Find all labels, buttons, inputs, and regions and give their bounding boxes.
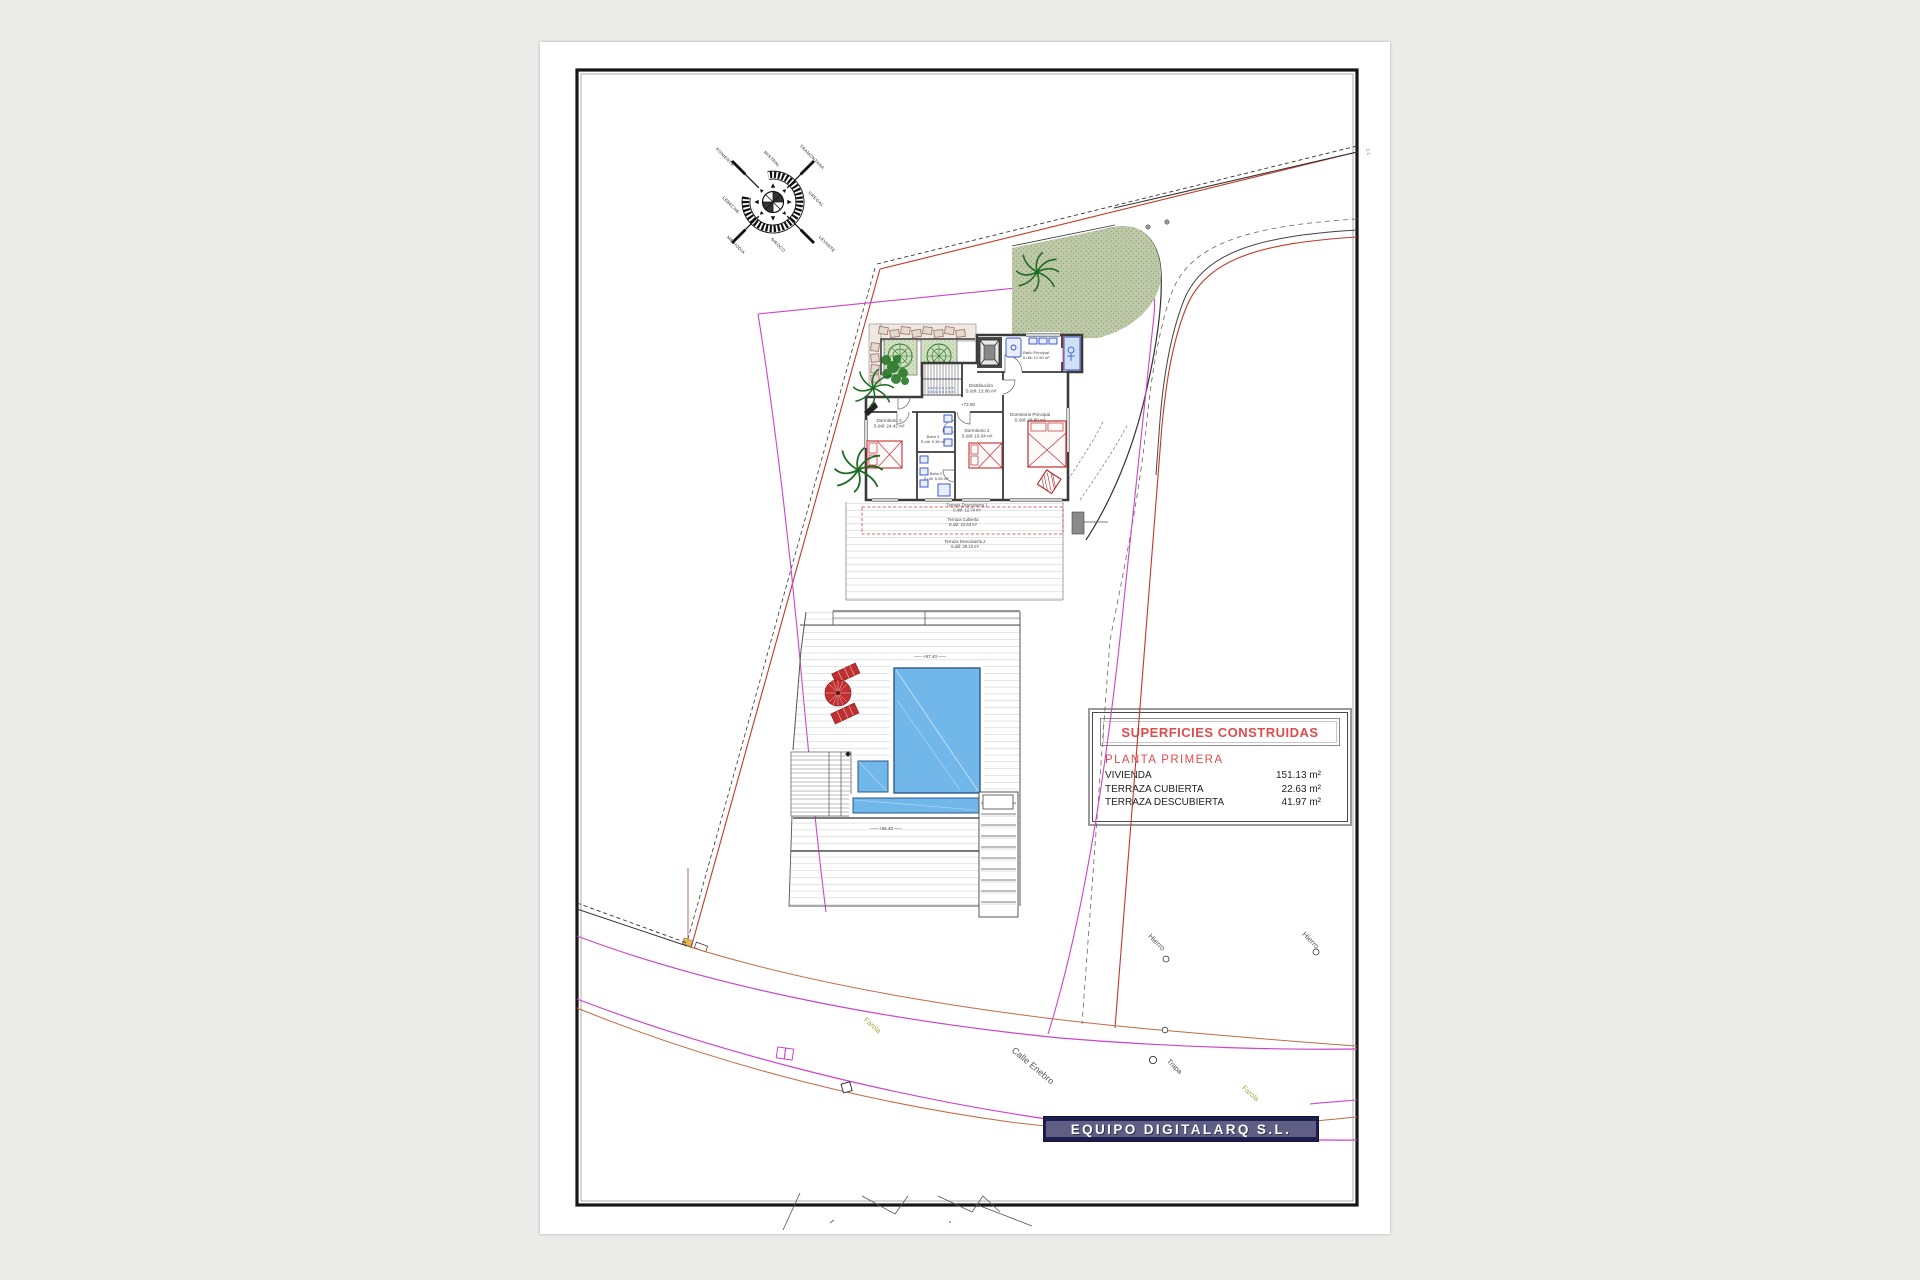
row-value: 41.97 m² xyxy=(1282,796,1321,810)
row-value: 151.13 m² xyxy=(1276,769,1321,783)
table-row: TERRAZA CUBIERTA 22.63 m² xyxy=(1105,783,1321,797)
areas-table-section: PLANTA PRIMERA xyxy=(1105,754,1347,766)
areas-table-title: SUPERFICIES CONSTRUIDAS xyxy=(1100,718,1340,746)
company-name: EQUIPO DIGITALARQ S.L. xyxy=(1071,1122,1292,1137)
table-row: TERRAZA DESCUBIERTA 41.97 m² xyxy=(1105,796,1321,810)
drawing-canvas: SUPERFICIES CONSTRUIDAS PLANTA PRIMERA V… xyxy=(0,0,1920,1280)
row-label: TERRAZA CUBIERTA xyxy=(1105,783,1204,797)
company-banner: EQUIPO DIGITALARQ S.L. xyxy=(1043,1116,1319,1142)
row-label: TERRAZA DESCUBIERTA xyxy=(1105,796,1224,810)
row-label: VIVIENDA xyxy=(1105,769,1152,783)
table-row: VIVIENDA 151.13 m² xyxy=(1105,769,1321,783)
row-value: 22.63 m² xyxy=(1282,783,1321,797)
areas-table: SUPERFICIES CONSTRUIDAS PLANTA PRIMERA V… xyxy=(1092,712,1348,822)
company-banner-band: EQUIPO DIGITALARQ S.L. xyxy=(1046,1121,1316,1137)
plan-sheet xyxy=(540,42,1390,1234)
